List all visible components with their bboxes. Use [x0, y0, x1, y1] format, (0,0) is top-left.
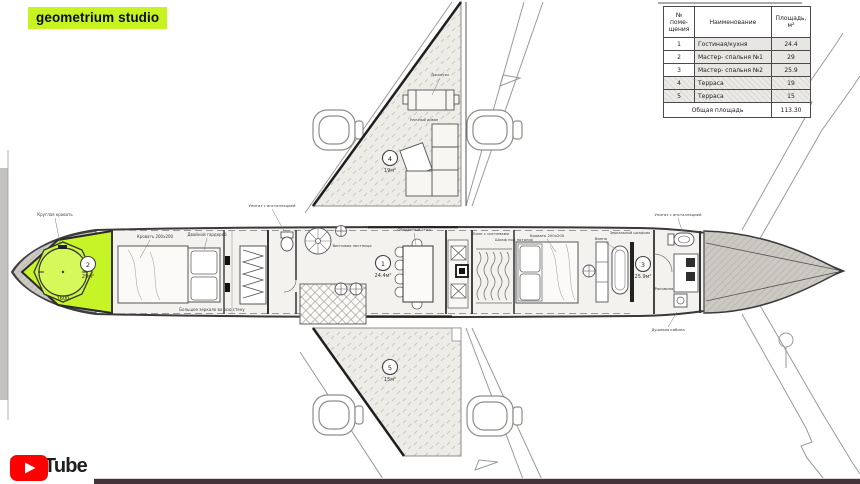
label-sink: Раковина: [655, 286, 674, 291]
label-climate: Блок с системами: [473, 231, 509, 236]
washing-machine: [674, 294, 687, 307]
toilet-1: [281, 232, 293, 251]
video-frame: 4 19м² Джакузи Уличный диван 5 15м²: [0, 0, 860, 484]
schedule-header-num: № поме- щения: [664, 7, 695, 38]
label-nose-bed: Круглая кровать: [37, 212, 73, 217]
schedule-header-row: № поме- щения Наименование Площадь, м²: [664, 7, 811, 38]
svg-text:24.4м²: 24.4м²: [375, 273, 392, 279]
room-marker-2: 2 29м²: [81, 257, 96, 281]
svg-text:3: 3: [641, 261, 645, 269]
bathtub: [612, 246, 628, 294]
room-marker-5: 5 15м²: [383, 360, 398, 384]
bed-master2: [516, 242, 578, 303]
engine-lower-left: [313, 395, 363, 435]
terrace-lower: 5 15м²: [313, 328, 461, 456]
schedule-header-name: Наименование: [695, 7, 772, 38]
engine-upper-left: [313, 110, 363, 150]
studio-logo: geometrium studio: [28, 7, 167, 29]
shelf-unit: [240, 246, 266, 304]
schedule-total-value: 113.30: [772, 103, 811, 118]
schedule-total-row: Общая площадь 113.30: [664, 103, 811, 118]
room-marker-3: 3 25.9м²: [635, 257, 652, 281]
tail-cone: [700, 231, 841, 313]
room-schedule-table: № поме- щения Наименование Площадь, м² 1…: [663, 6, 811, 118]
svg-text:1: 1: [381, 260, 385, 268]
bed-master1: [118, 246, 220, 303]
label-wc1: Унитаз с инсталляцией: [249, 203, 296, 208]
toilet-2: [668, 233, 694, 246]
svg-text:15м²: 15м²: [384, 377, 396, 383]
engine-lower-right: [467, 396, 522, 436]
youtube-play-icon: [10, 455, 48, 481]
label-shower: Душевая кабина: [651, 327, 684, 332]
label-dining: Обеденный стол: [397, 227, 431, 232]
schedule-row-2: 2 Мастер- спальня №1 29: [664, 51, 811, 64]
room-marker-1: 1 24.4м²: [375, 256, 392, 280]
spiral-staircase: [305, 228, 331, 254]
svg-text:29м²: 29м²: [82, 274, 94, 280]
svg-text:2: 2: [86, 261, 90, 269]
engine-upper-right: [467, 110, 522, 150]
label-outdoor-sofa: Уличный диван: [410, 118, 438, 122]
tv-panel: [225, 256, 230, 265]
label-wc2: Унитаз с инсталляцией: [655, 212, 702, 217]
label-mirror-cab: Зеркальный шкафчик: [610, 231, 651, 235]
bath-cabinet: [596, 242, 608, 302]
label-closet-ceiling: Кровать 200х200: [530, 233, 565, 238]
label-wardrobe1: Двойной гардероб: [187, 232, 227, 237]
label-bed1: Кровать 200х200: [137, 234, 174, 239]
video-progress-bar[interactable]: [94, 479, 860, 484]
label-stairs: Винтовая лестница: [332, 243, 371, 248]
schedule-row-5: 5 Терраса 15: [664, 90, 811, 103]
schedule-header-area: Площадь, м²: [772, 7, 811, 38]
vanity: [674, 254, 698, 292]
terrace-upper: 4 19м² Джакузи Уличный диван: [313, 2, 466, 206]
nose-section: 1600 Круглая кровать 2 29м²: [13, 212, 112, 313]
jacuzzi: [403, 90, 459, 110]
studio-logo-text: geometrium studio: [36, 10, 159, 25]
label-jacuzzi: Джакузи: [431, 72, 449, 77]
svg-text:19м²: 19м²: [384, 168, 396, 174]
schedule-total-label: Общая площадь: [664, 103, 772, 118]
kitchen-floor: [300, 283, 366, 324]
label-mirror-note: Большое зеркало во всю стену: [179, 307, 245, 312]
room-marker-4: 4 19м²: [383, 151, 398, 175]
label-bath: Ванна: [595, 236, 607, 241]
schedule-row-4: 4 Терраса 19: [664, 77, 811, 90]
dim-round-bed: 1600: [57, 296, 70, 302]
schedule-row-3: 3 Мастер- спальня №2 25.9: [664, 64, 811, 77]
youtube-logo[interactable]: YouTube: [10, 455, 87, 478]
svg-text:5: 5: [388, 364, 392, 372]
schedule-row-1: 1 Гостиная/кухня 24.4: [664, 38, 811, 51]
svg-text:25.9м²: 25.9м²: [635, 274, 652, 280]
svg-text:4: 4: [388, 155, 392, 163]
